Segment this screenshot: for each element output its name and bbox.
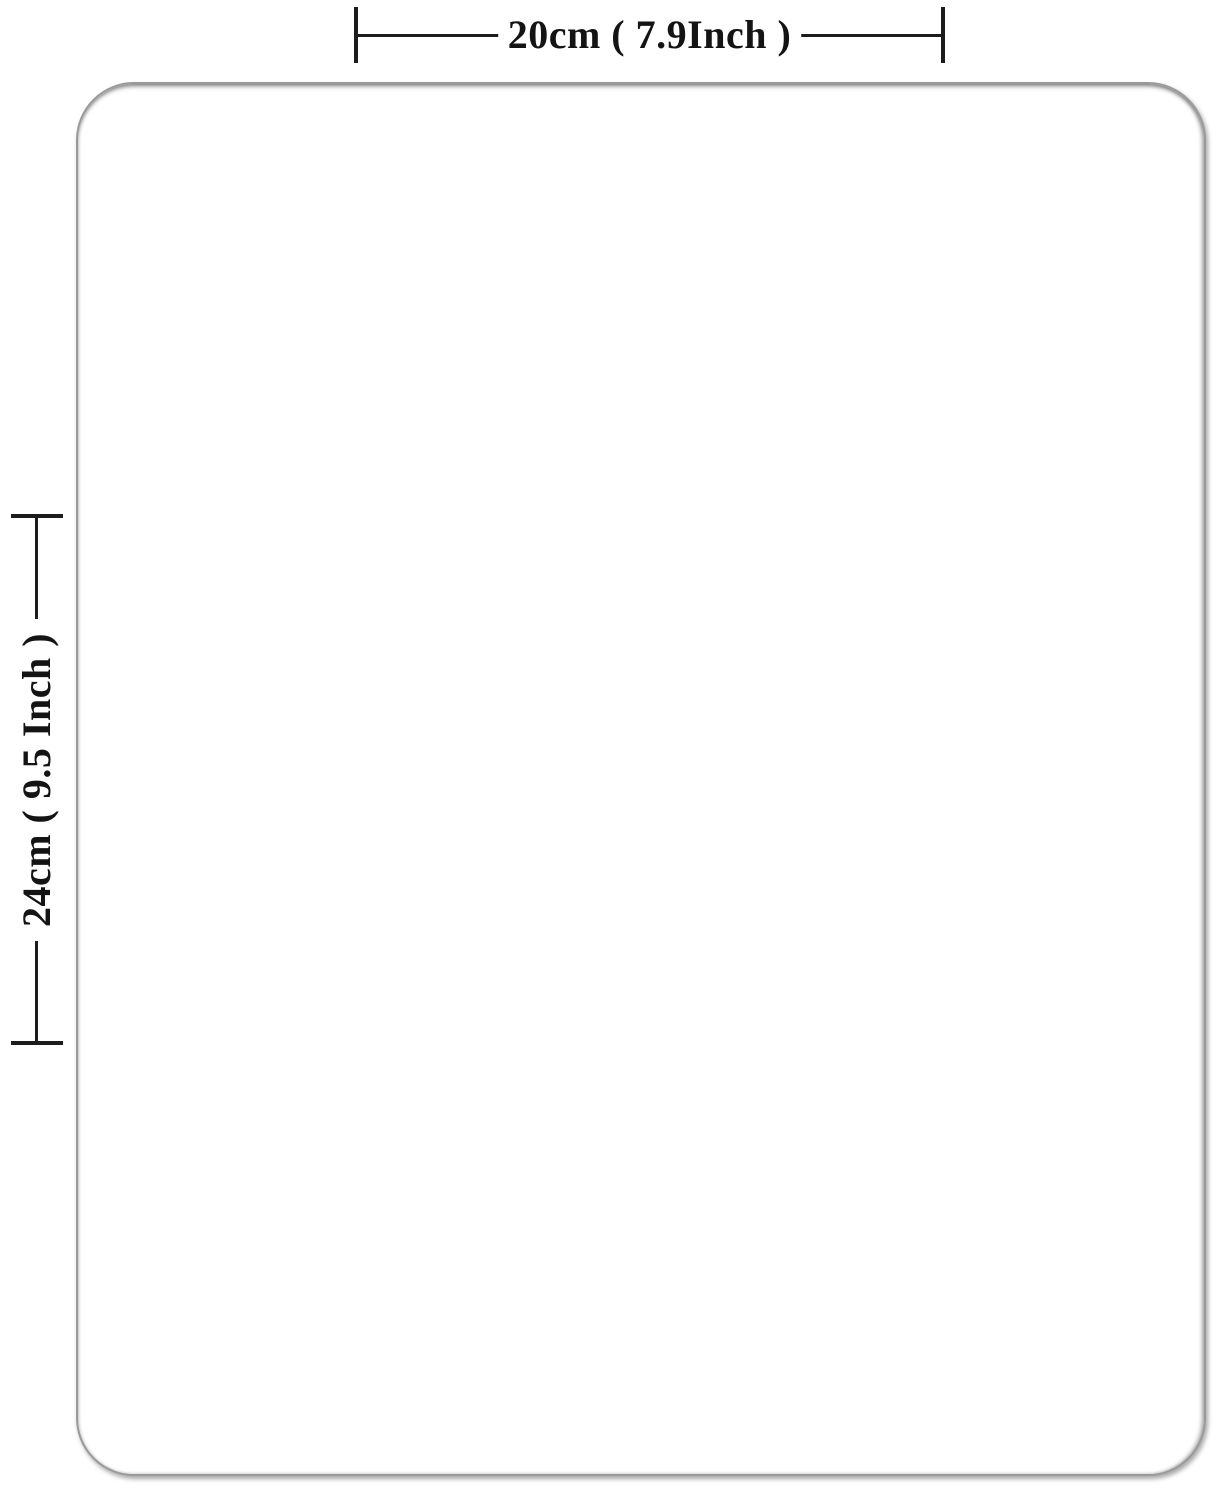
width-dimension-tick-left bbox=[354, 7, 358, 63]
height-dimension-label: 24cm ( 9.5 Inch ) bbox=[15, 618, 59, 940]
height-dimension: 24cm ( 9.5 Inch ) bbox=[11, 514, 63, 1045]
width-dimension: 20cm ( 7.9Inch ) bbox=[354, 7, 945, 63]
product-dimension-diagram: 20cm ( 7.9Inch ) 24cm ( 9.5 Inch ) bbox=[0, 0, 1217, 1492]
product-board bbox=[76, 82, 1206, 1476]
height-dimension-tick-bottom bbox=[11, 1041, 63, 1045]
height-dimension-tick-top bbox=[11, 514, 63, 518]
width-dimension-label: 20cm ( 7.9Inch ) bbox=[498, 13, 802, 57]
width-dimension-tick-right bbox=[941, 7, 945, 63]
